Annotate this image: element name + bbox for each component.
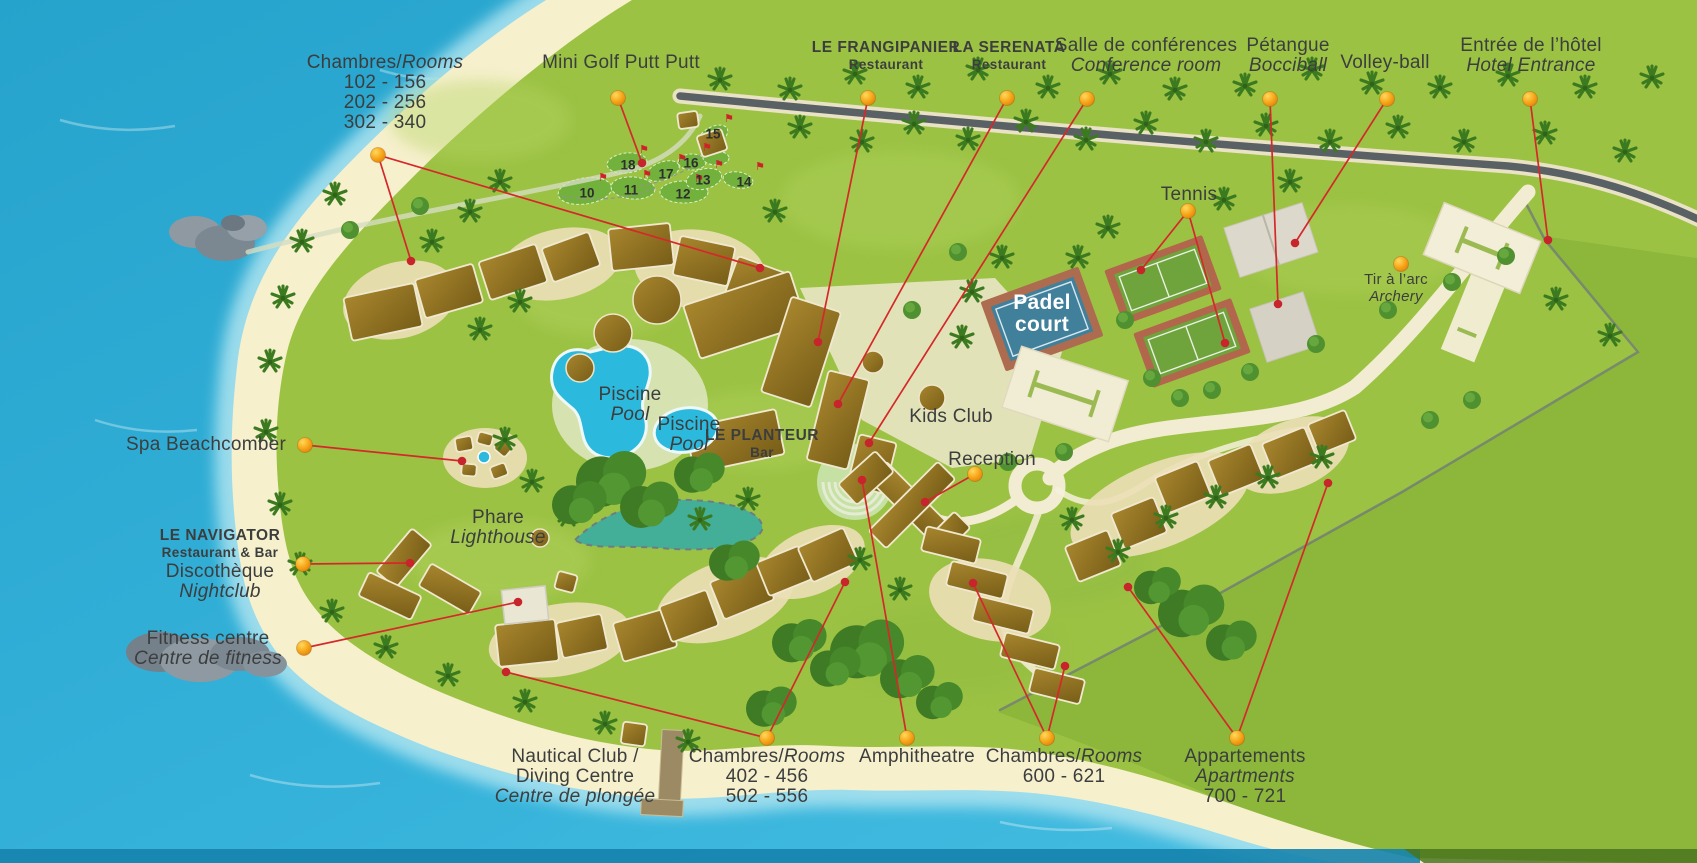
callout-target-reception [921, 498, 930, 507]
callout-line-rooms-400 [767, 582, 845, 738]
callout-dot-serenata [1000, 91, 1015, 106]
callout-line-frangipanier [818, 98, 868, 342]
callout-dot-tennis [1181, 204, 1196, 219]
callout-line-mini-golf [618, 98, 642, 163]
callout-dot-amphitheatre [900, 731, 915, 746]
callout-line-apartments [1128, 587, 1237, 738]
callout-dot-volleyball [1380, 92, 1395, 107]
callout-target-conference [865, 439, 874, 448]
callout-dot-rooms-400 [760, 731, 775, 746]
callout-dot-conference [1080, 92, 1095, 107]
callout-line-fitness [304, 602, 518, 648]
callout-target-frangipanier [814, 338, 823, 347]
callout-line-rooms-400 [506, 672, 767, 738]
callout-line-reception [925, 474, 975, 502]
callout-line-rooms-600 [973, 583, 1047, 738]
callout-line-tennis [1188, 211, 1225, 343]
callout-target-amphitheatre [858, 476, 867, 485]
callout-target-rooms-nw [756, 264, 765, 273]
callout-target-serenata [834, 400, 843, 409]
callout-target-apartments [1124, 583, 1133, 592]
callout-line-hotel-entrance [1530, 99, 1548, 240]
callout-dot-rooms-600 [1040, 731, 1055, 746]
callout-line-spa [305, 445, 462, 461]
callout-line-amphitheatre [862, 480, 907, 738]
callout-target-petangue [1274, 300, 1283, 309]
callout-target-rooms-400 [841, 578, 850, 587]
callout-dot-rooms-nw [371, 148, 386, 163]
callout-target-apartments [1324, 479, 1333, 488]
callout-line-apartments [1237, 483, 1328, 738]
callout-line-petangue [1270, 99, 1278, 304]
callout-target-rooms-600 [969, 579, 978, 588]
callout-line-rooms-nw [378, 155, 411, 261]
callout-dot-petangue [1263, 92, 1278, 107]
resort-map: Chambres/Rooms102 - 156202 - 256302 - 34… [0, 0, 1697, 863]
callout-overlay [0, 0, 1697, 863]
callout-target-rooms-600 [1061, 662, 1070, 671]
callout-target-tennis [1137, 266, 1146, 275]
callout-dot-apartments [1230, 731, 1245, 746]
callout-dot-frangipanier [861, 91, 876, 106]
callout-dot-reception [968, 467, 983, 482]
callout-dot-spa [298, 438, 313, 453]
callout-target-tennis [1221, 339, 1230, 348]
callout-dot-navigator [296, 557, 311, 572]
callout-line-volleyball [1295, 99, 1387, 243]
callout-dot-hotel-entrance [1523, 92, 1538, 107]
callout-target-rooms-nw [407, 257, 416, 266]
callout-line-rooms-nw [378, 155, 760, 268]
callout-dot-mini-golf [611, 91, 626, 106]
callout-target-volleyball [1291, 239, 1300, 248]
callout-target-navigator [406, 559, 415, 568]
callout-line-tennis [1141, 211, 1188, 270]
callout-target-hotel-entrance [1544, 236, 1553, 245]
callout-line-navigator [303, 563, 410, 564]
callout-target-fitness [514, 598, 523, 607]
callout-dot-archery [1394, 257, 1409, 272]
callout-line-rooms-600 [1047, 666, 1065, 738]
callout-dot-fitness [297, 641, 312, 656]
callout-target-mini-golf [638, 159, 647, 168]
callout-target-rooms-400 [502, 668, 511, 677]
callout-target-spa [458, 457, 467, 466]
